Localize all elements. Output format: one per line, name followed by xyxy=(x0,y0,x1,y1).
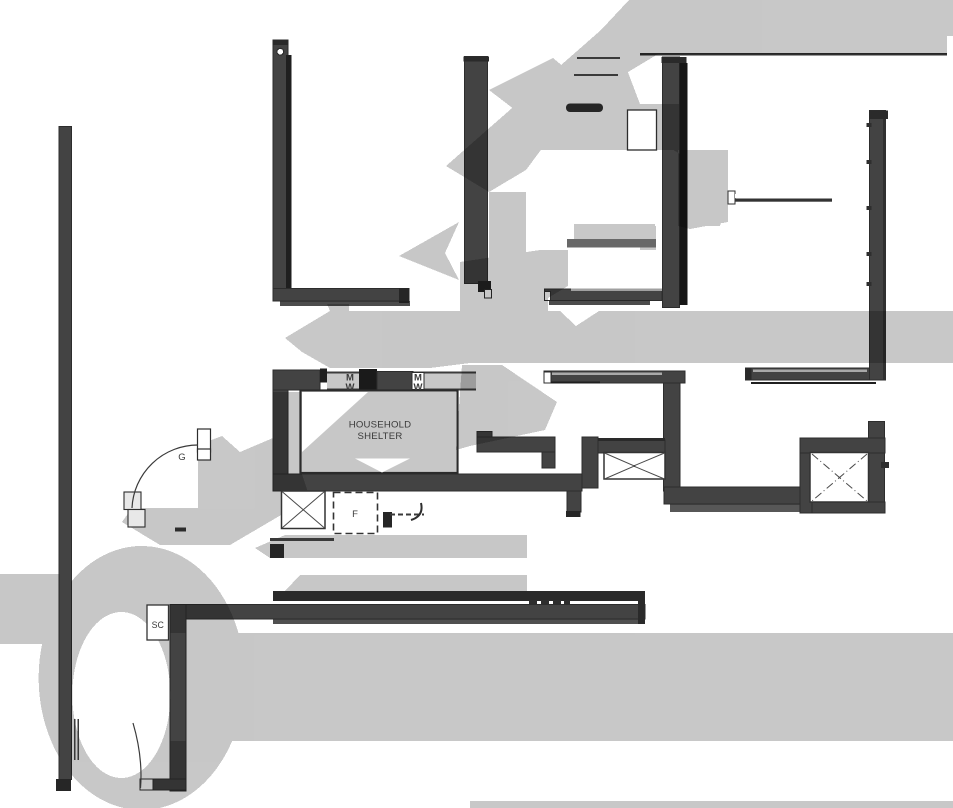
svg-text:SC: SC xyxy=(152,620,165,630)
svg-text:G: G xyxy=(178,452,185,463)
svg-text:F: F xyxy=(352,509,358,520)
svg-text:HOUSEHOLD: HOUSEHOLD xyxy=(349,420,412,431)
svg-text:W: W xyxy=(414,382,423,393)
svg-text:SHELTER: SHELTER xyxy=(358,431,403,442)
svg-text:W: W xyxy=(346,382,355,393)
